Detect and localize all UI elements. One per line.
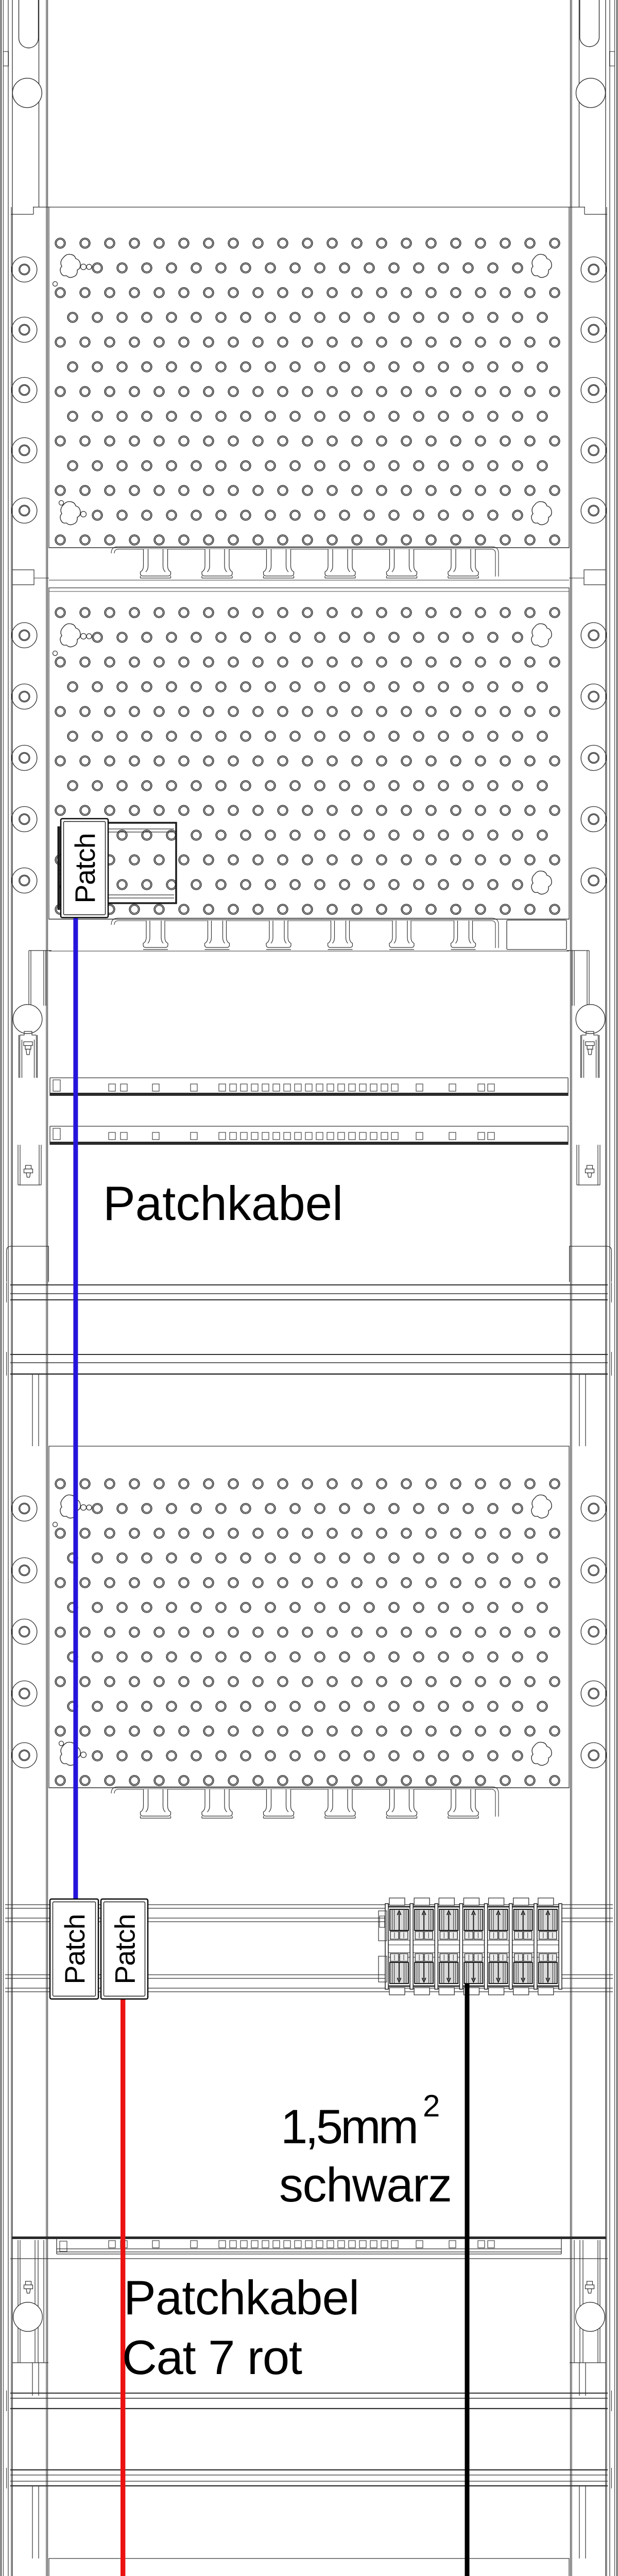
svg-text:2: 2 xyxy=(423,2089,440,2123)
svg-text:1,5mm: 1,5mm xyxy=(281,2099,419,2154)
svg-text:Patchkabel: Patchkabel xyxy=(124,2270,359,2325)
svg-text:Patch: Patch xyxy=(59,1914,91,1985)
svg-text:schwarz: schwarz xyxy=(279,2158,452,2212)
svg-text:Cat 7 rot: Cat 7 rot xyxy=(122,2330,302,2384)
svg-text:Patchkabel: Patchkabel xyxy=(103,1176,343,1230)
svg-text:Patch: Patch xyxy=(69,833,101,904)
svg-text:Patch: Patch xyxy=(109,1914,141,1985)
